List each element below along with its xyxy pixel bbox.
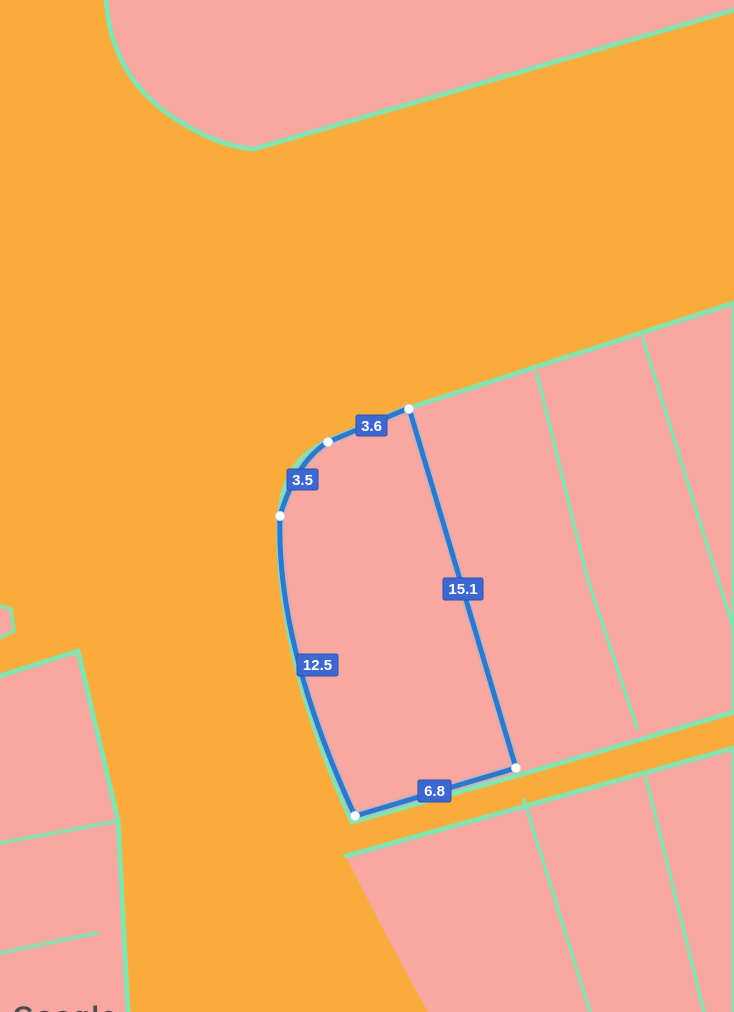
vertex-dot-bottom[interactable]	[351, 812, 360, 821]
measurement-label-text: 6.8	[424, 783, 445, 800]
measurement-label-right: 15.1	[443, 578, 483, 600]
map-svg: 3.6 3.5 15.1 12.5 6.8	[0, 0, 734, 1012]
measurement-label-top: 3.6	[356, 415, 387, 436]
vertex-dot-top-right[interactable]	[405, 405, 414, 414]
google-watermark: Google	[13, 1001, 118, 1012]
map-canvas[interactable]: 3.6 3.5 15.1 12.5 6.8 Google	[0, 0, 734, 1012]
measurement-label-text: 3.5	[292, 472, 313, 489]
measurement-label-left: 12.5	[297, 654, 338, 676]
measurement-label-text: 15.1	[448, 581, 477, 598]
vertex-dot-top-mid[interactable]	[324, 438, 333, 447]
vertex-dot-bottom-right[interactable]	[512, 764, 521, 773]
measurement-label-text: 3.6	[361, 418, 382, 435]
measurement-label-text: 12.5	[303, 657, 332, 674]
vertex-dot-left[interactable]	[276, 512, 285, 521]
measurement-label-upper-left: 3.5	[287, 469, 318, 490]
measurement-label-bottom: 6.8	[418, 780, 451, 802]
